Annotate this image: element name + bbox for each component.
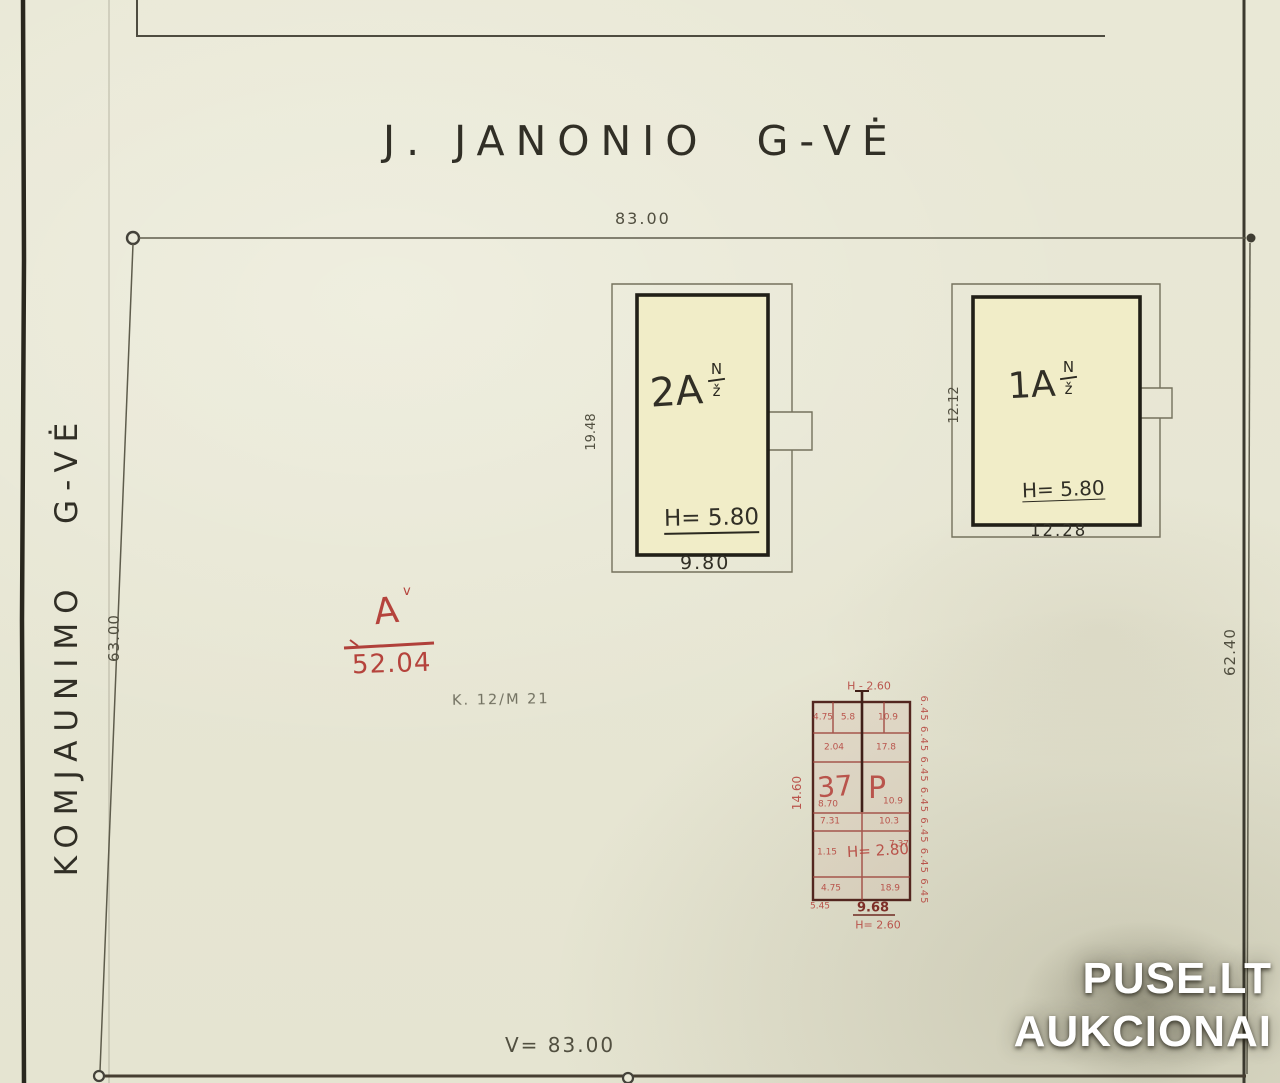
red-grid-cell: 17.8 xyxy=(876,744,896,753)
building-2a-label: 2A xyxy=(649,370,704,414)
building-2a-width: 9.80 xyxy=(680,554,730,573)
red-grid-big-left: 37 xyxy=(816,772,854,802)
building-2a-height: H= 5.80 xyxy=(664,506,760,535)
building-2a-fraction: N ž xyxy=(708,360,725,400)
red-grid-left-dim: 14.60 xyxy=(791,753,807,833)
survey-marker-top-right xyxy=(1247,234,1256,243)
street-name-left: KOMJAUNIMO G-VĖ xyxy=(52,325,92,965)
red-grid-cell: 10.3 xyxy=(879,818,899,827)
red-grid-bottom-value: H= 2.60 xyxy=(855,920,900,931)
survey-marker-bottom-left xyxy=(94,1071,104,1081)
red-grid-cell: 7.31 xyxy=(820,818,840,827)
survey-note: K. 12/M 21 xyxy=(452,692,550,708)
survey-marker-bottom-mid xyxy=(623,1073,633,1083)
scanned-site-plan: J. JANONIO G-VĖ KOMJAUNIMO G-VĖ 83.00 63… xyxy=(0,0,1280,1083)
building-1a-frac-top: N xyxy=(1063,358,1074,376)
red-grid-bottom-left: 5.45 xyxy=(810,903,830,912)
building-1a-width: 12.28 xyxy=(1030,523,1087,540)
red-grid-bottom-center: 9.68 xyxy=(857,902,889,915)
building-1a-label: 1A xyxy=(1007,367,1056,405)
red-grid-cell: 18.9 xyxy=(880,885,900,894)
survey-marker-top-left xyxy=(127,232,139,244)
red-point-value: 52.04 xyxy=(352,650,432,679)
street-name-top: J. JANONIO G-VĖ xyxy=(383,121,899,162)
red-grid-cell: 4.75 xyxy=(821,885,841,894)
red-grid-cell: 7.37 xyxy=(889,841,909,850)
building-1a-frac-bottom: ž xyxy=(1065,380,1073,398)
watermark: PUSE.LT AUKCIONAI xyxy=(1014,952,1272,1058)
building-1a-porch xyxy=(1140,388,1172,418)
building-2a-porch xyxy=(768,412,812,450)
top-neighbor-outline xyxy=(137,0,1105,36)
building-2a-depth: 19.48 xyxy=(585,382,603,482)
red-grid-cell: 10.9 xyxy=(878,714,898,723)
plot-dim-left: 63.00 xyxy=(107,578,127,698)
red-grid-right-column: 6.45 6.45 6.45 6.45 6.45 6.45 6.45 xyxy=(914,695,928,905)
sheet-left-border xyxy=(22,0,24,1083)
building-2a-frac-top: N xyxy=(711,360,722,378)
building-1a-depth: 12.12 xyxy=(948,355,966,455)
red-grid-cell: 1.15 xyxy=(817,849,837,858)
red-grid-cell: 10.9 xyxy=(883,798,903,807)
red-grid-cell: 4.75 xyxy=(813,714,833,723)
plot-dim-bottom: V= 83.00 xyxy=(505,1035,615,1055)
plot-dim-top: 83.00 xyxy=(615,211,671,227)
red-point-label: A xyxy=(372,593,400,631)
building-1a-fraction: N ž xyxy=(1060,358,1077,398)
watermark-line2: AUKCIONAI xyxy=(1014,1005,1272,1058)
red-grid-top-dim: H - 2.60 xyxy=(847,681,891,692)
building-1a-height: H= 5.80 xyxy=(1022,478,1105,503)
plot-dim-right: 62.40 xyxy=(1223,592,1243,712)
red-grid-cell: 2.04 xyxy=(824,744,844,753)
watermark-line1: PUSE.LT xyxy=(1014,952,1272,1005)
red-grid-cell: 8.70 xyxy=(818,801,838,810)
red-point-sup: v xyxy=(403,585,411,598)
red-grid-cell: 5.8 xyxy=(841,714,855,723)
building-2a-frac-bottom: ž xyxy=(713,382,721,400)
red-point-tick xyxy=(350,640,358,646)
